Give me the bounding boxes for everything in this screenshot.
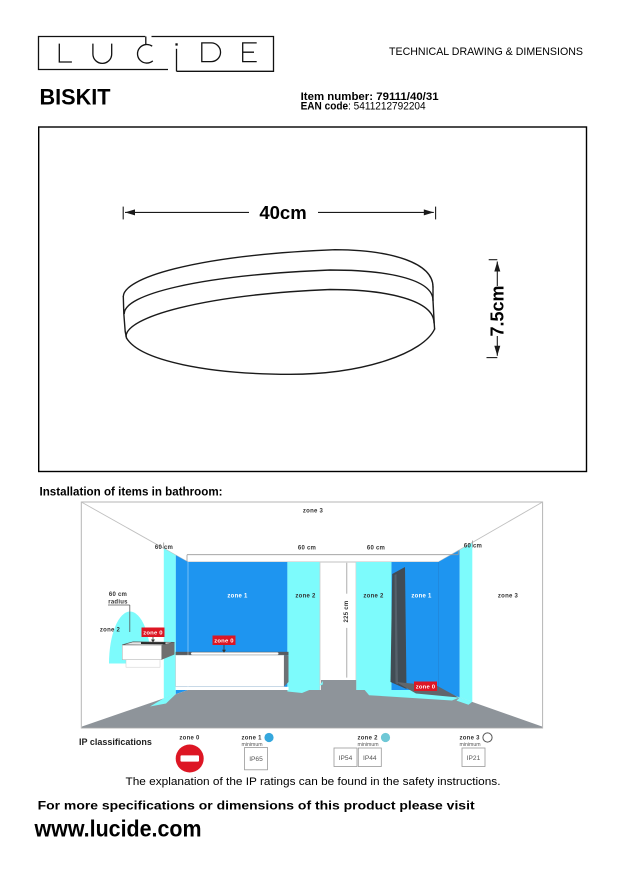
svg-text:zone 0: zone 0 (416, 685, 436, 691)
svg-text:IP54: IP54 (339, 755, 353, 762)
svg-text:60 cm: 60 cm (464, 544, 482, 550)
svg-text:zone 0: zone 0 (143, 631, 163, 637)
svg-text:Installation of items in bathr: Installation of items in bathroom: (40, 487, 223, 499)
svg-text:TECHNICAL DRAWING & DIMENSIONS: TECHNICAL DRAWING & DIMENSIONS (389, 46, 583, 58)
svg-text:BISKIT: BISKIT (40, 85, 112, 110)
svg-text:zone 3: zone 3 (303, 509, 324, 515)
svg-text:IP44: IP44 (363, 755, 377, 762)
svg-text:zone 1: zone 1 (242, 736, 263, 742)
svg-text:zone 2: zone 2 (358, 736, 379, 742)
svg-text:60 cm: 60 cm (298, 546, 316, 552)
svg-text:40cm: 40cm (259, 202, 306, 223)
svg-text:225 cm: 225 cm (344, 601, 350, 623)
svg-text:60 cm: 60 cm (367, 546, 385, 552)
svg-text:minimum: minimum (358, 742, 379, 748)
svg-text:www.lucide.com: www.lucide.com (34, 816, 202, 842)
svg-text:zone 3: zone 3 (460, 736, 481, 742)
svg-text:60 cm: 60 cm (109, 592, 127, 598)
svg-text:IP classifications: IP classifications (79, 737, 152, 747)
svg-text:EAN code: 5411212792204: EAN code: 5411212792204 (301, 101, 426, 113)
svg-text:60 cm: 60 cm (155, 545, 173, 551)
svg-text:zone 1: zone 1 (227, 594, 248, 600)
svg-text:minimum: minimum (460, 742, 481, 748)
svg-text:IP21: IP21 (467, 755, 481, 762)
svg-text:zone 0: zone 0 (214, 639, 234, 645)
svg-text:For more specifications or dim: For more specifications or dimensions of… (38, 799, 475, 813)
svg-text:zone 1: zone 1 (411, 594, 432, 600)
svg-text:The explanation of the IP rati: The explanation of the IP ratings can be… (126, 776, 501, 788)
svg-text:minimum: minimum (242, 742, 263, 748)
svg-text:zone 2: zone 2 (295, 594, 316, 600)
svg-text:radius: radius (108, 600, 128, 606)
svg-text:7.5cm: 7.5cm (488, 285, 508, 336)
svg-text:IP65: IP65 (249, 756, 263, 763)
svg-text:zone 3: zone 3 (498, 594, 519, 600)
svg-text:zone 2: zone 2 (100, 628, 121, 634)
svg-text:zone 0: zone 0 (179, 736, 200, 742)
svg-text:zone 2: zone 2 (363, 594, 384, 600)
